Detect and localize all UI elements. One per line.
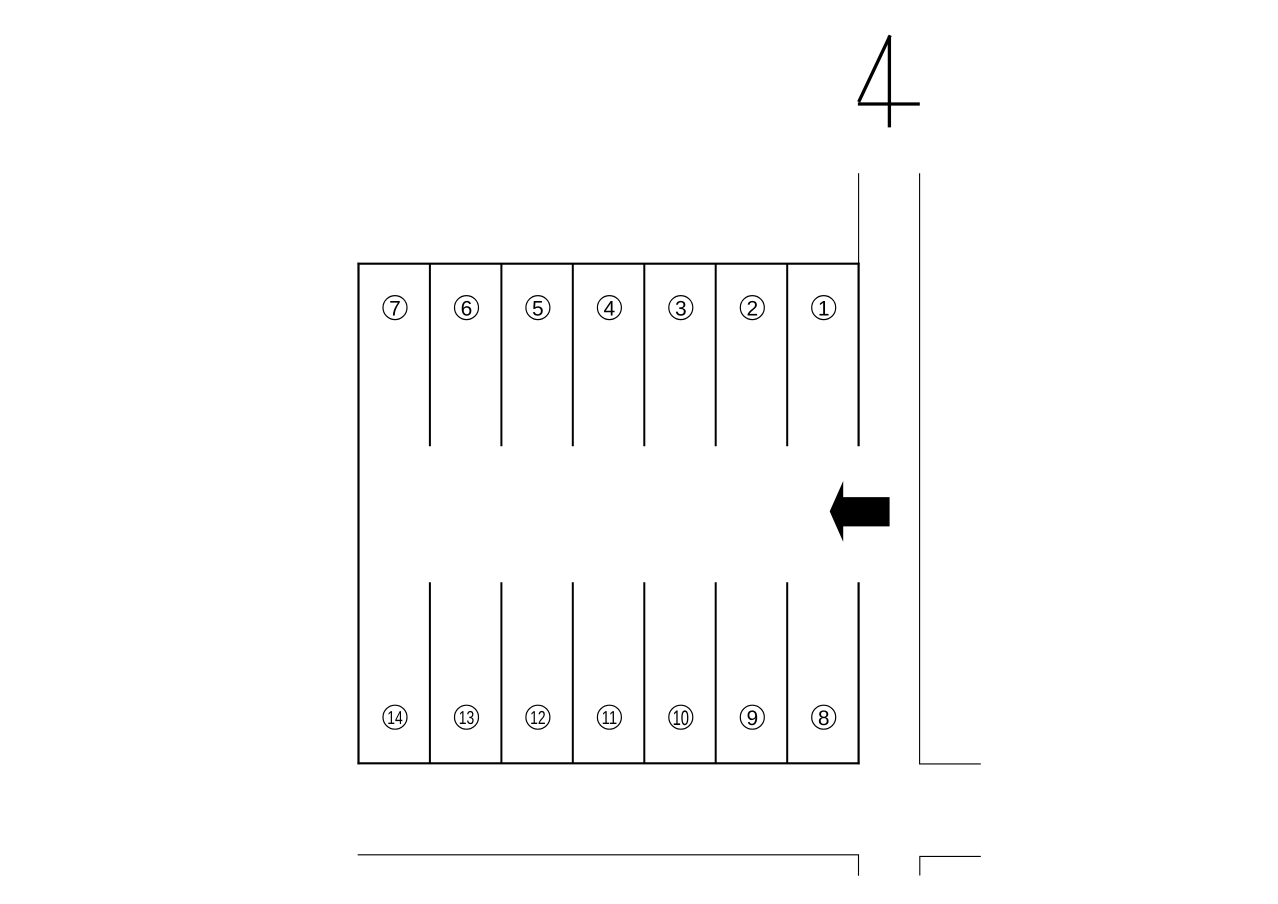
- svg-text:5: 5: [532, 298, 544, 321]
- svg-text:4: 4: [604, 298, 616, 321]
- svg-text:7: 7: [389, 298, 401, 321]
- svg-text:3: 3: [675, 298, 687, 321]
- svg-text:12: 12: [530, 707, 546, 728]
- svg-text:13: 13: [459, 707, 475, 728]
- svg-text:1: 1: [818, 298, 830, 321]
- svg-text:10: 10: [673, 707, 689, 730]
- svg-text:2: 2: [746, 298, 758, 321]
- svg-text:6: 6: [461, 298, 473, 321]
- svg-text:9: 9: [746, 707, 758, 730]
- svg-text:11: 11: [602, 707, 618, 728]
- svg-text:8: 8: [818, 707, 830, 730]
- svg-text:14: 14: [387, 707, 403, 728]
